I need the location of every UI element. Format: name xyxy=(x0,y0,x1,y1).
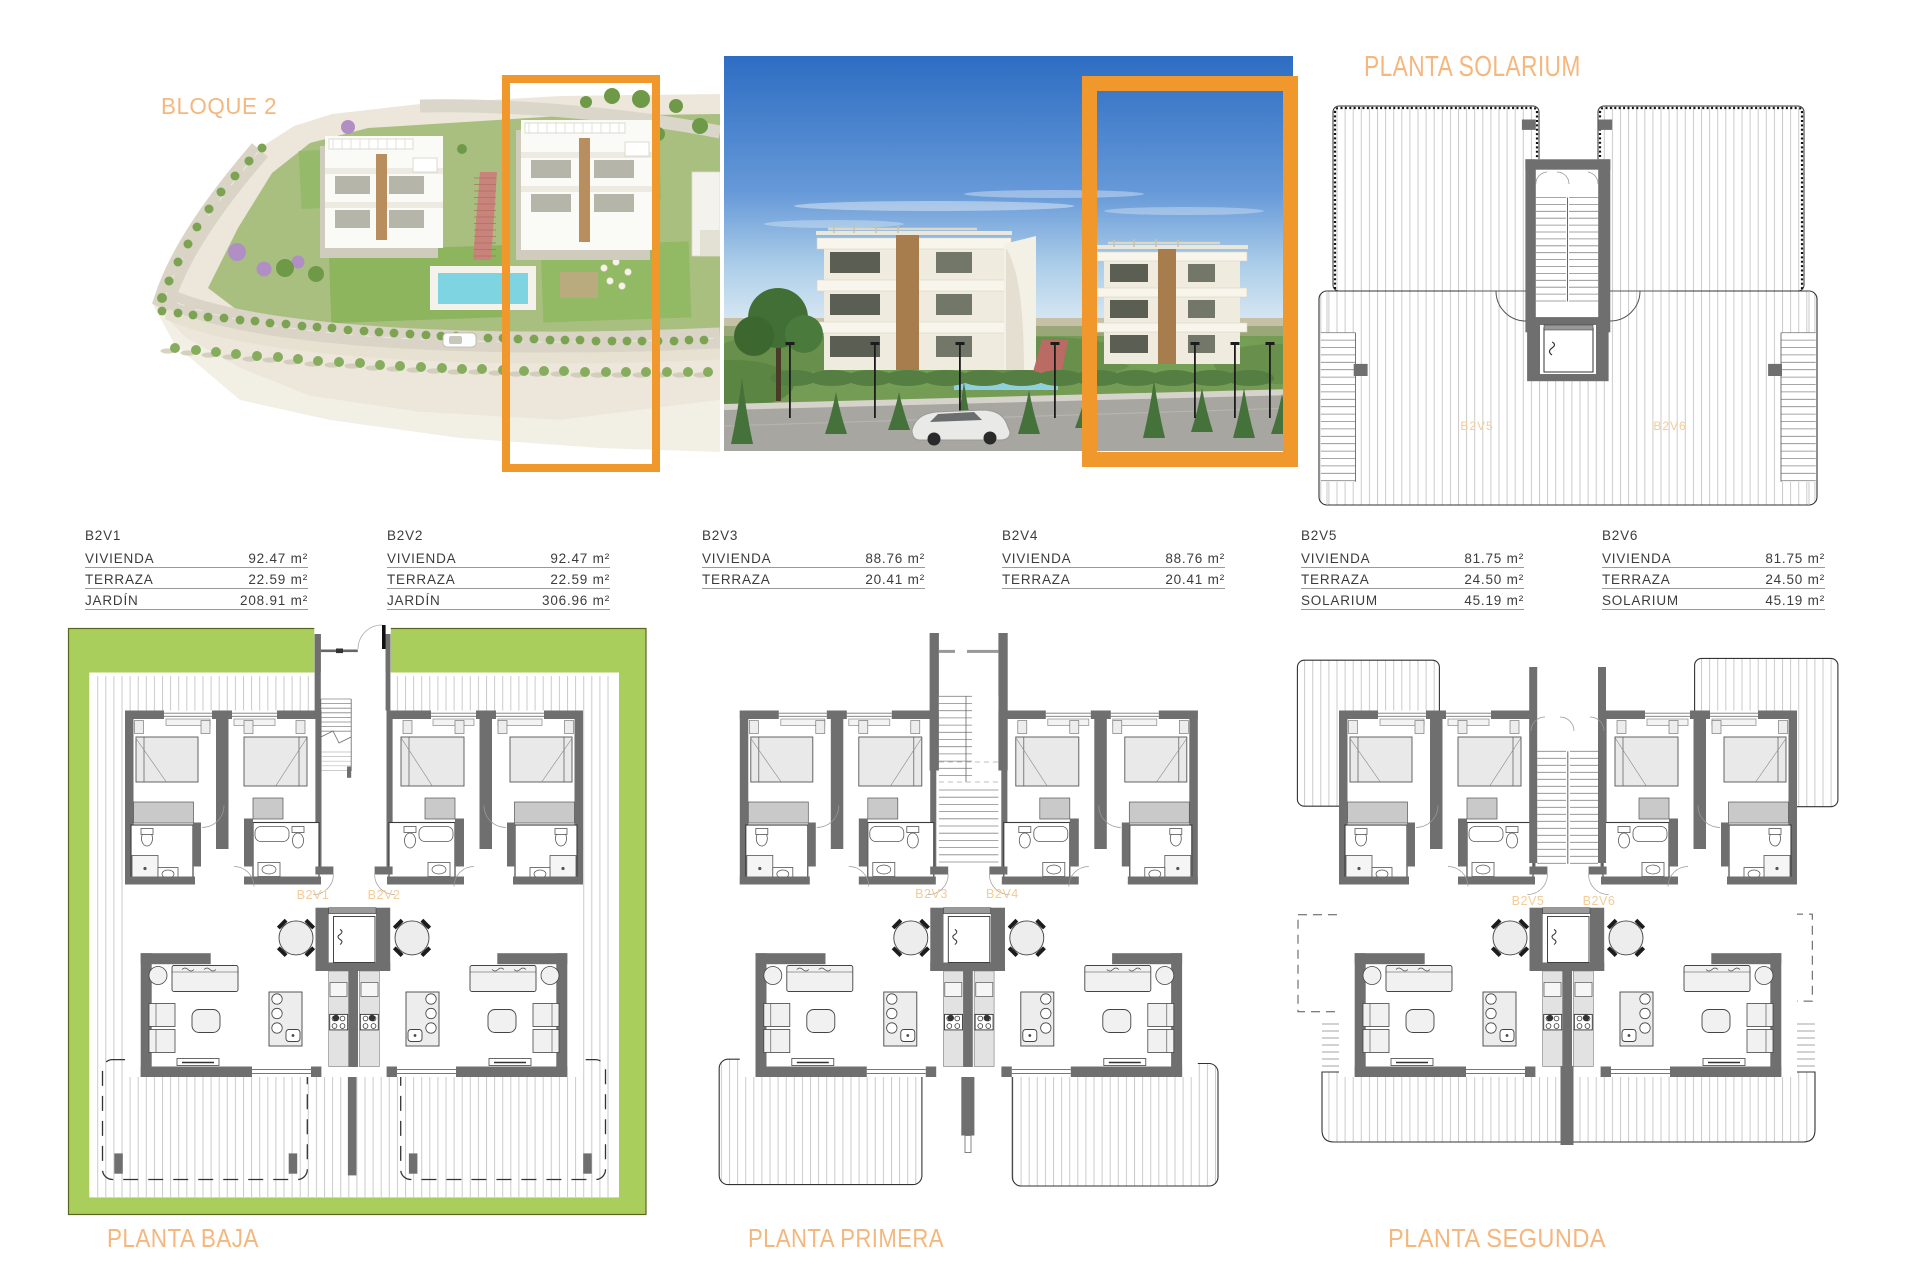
svg-text:B2V1: B2V1 xyxy=(297,888,330,902)
svg-text:B2V5: B2V5 xyxy=(1512,894,1545,908)
svg-text:B2V4: B2V4 xyxy=(986,887,1019,901)
svg-text:B2V2: B2V2 xyxy=(368,888,401,902)
svg-text:B2V6: B2V6 xyxy=(1583,894,1616,908)
svg-text:B2V6: B2V6 xyxy=(1653,419,1686,433)
svg-text:B2V5: B2V5 xyxy=(1460,419,1493,433)
svg-text:B2V3: B2V3 xyxy=(915,887,948,901)
